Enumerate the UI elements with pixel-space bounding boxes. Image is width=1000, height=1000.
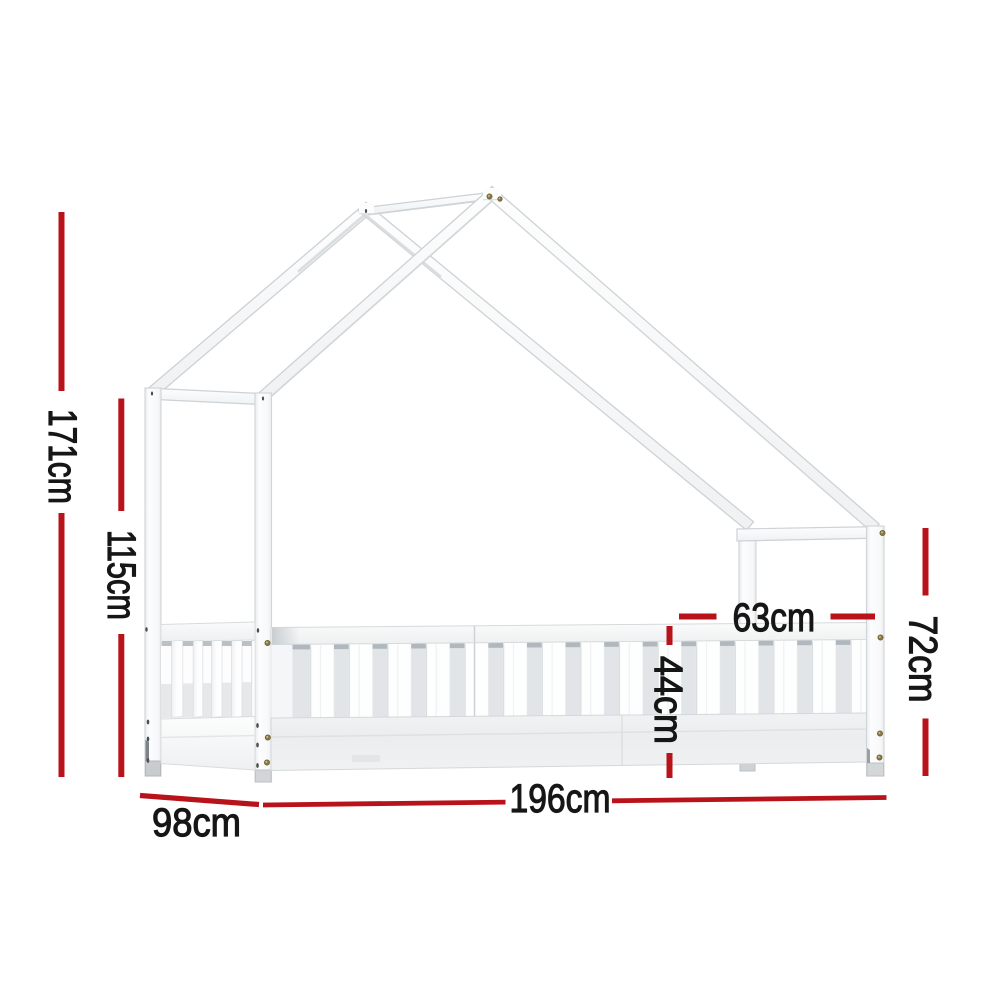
svg-text:72cm: 72cm [901, 616, 945, 703]
svg-text:196cm: 196cm [510, 777, 611, 821]
svg-text:171cm: 171cm [40, 409, 84, 504]
svg-text:63cm: 63cm [733, 596, 816, 640]
svg-text:44cm: 44cm [646, 656, 690, 744]
svg-text:98cm: 98cm [152, 801, 241, 845]
svg-text:115cm: 115cm [99, 530, 143, 620]
